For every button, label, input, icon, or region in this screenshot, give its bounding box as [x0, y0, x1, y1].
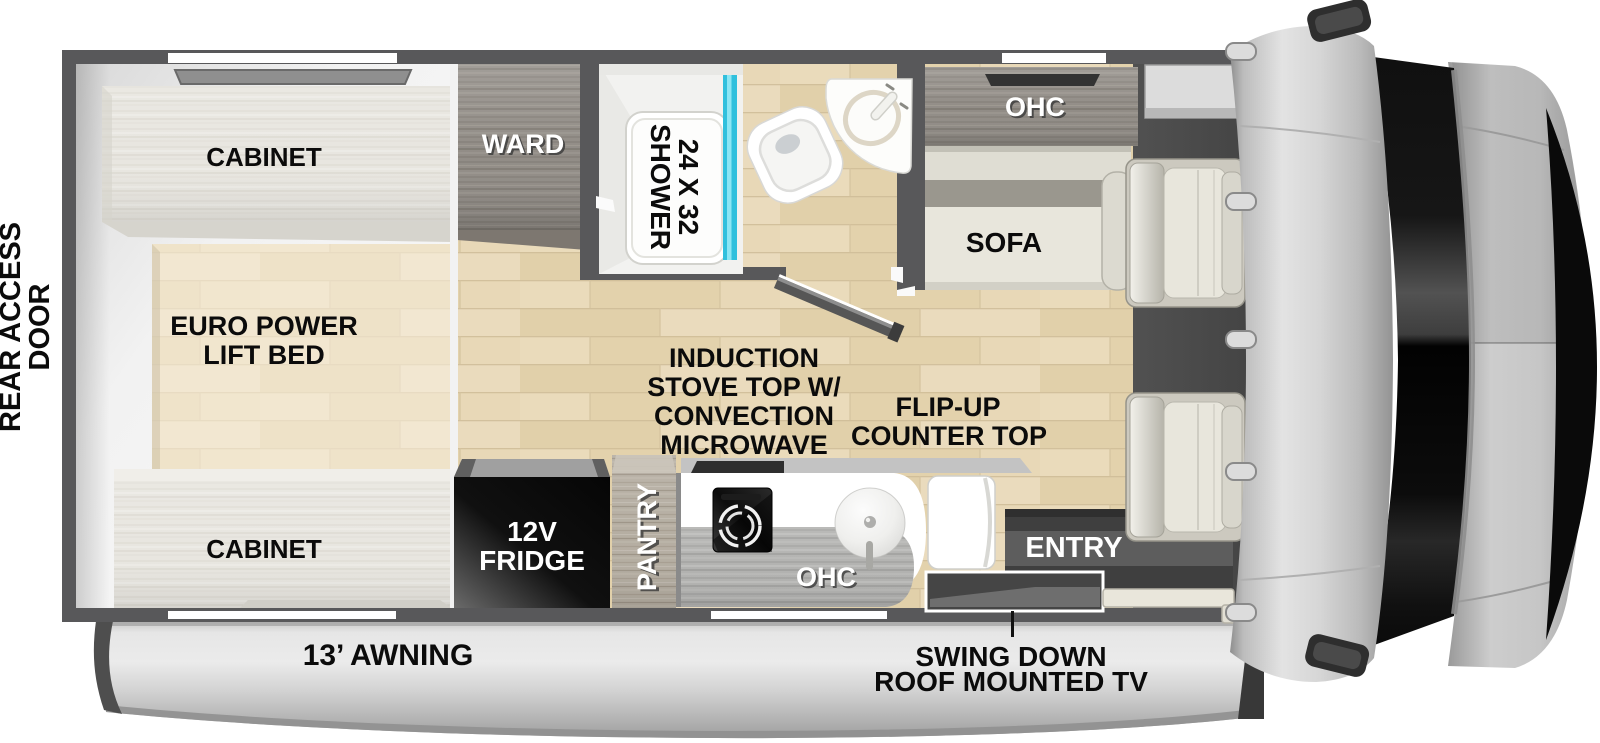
svg-text:SHOWER: SHOWER: [645, 124, 676, 250]
svg-text:OHC: OHC: [796, 562, 856, 592]
svg-text:CABINET: CABINET: [206, 534, 322, 564]
svg-text:13’ AWNING: 13’ AWNING: [303, 639, 474, 672]
svg-text:DOOR: DOOR: [24, 283, 56, 370]
svg-text:SOFA: SOFA: [966, 227, 1042, 258]
svg-text:FRIDGE: FRIDGE: [479, 545, 585, 576]
svg-text:INDUCTION: INDUCTION: [669, 343, 819, 373]
svg-text:MICROWAVE: MICROWAVE: [660, 430, 828, 460]
svg-text:EURO POWER: EURO POWER: [170, 311, 358, 341]
svg-text:CABINET: CABINET: [206, 142, 322, 172]
svg-text:24 X 32: 24 X 32: [673, 139, 704, 236]
svg-text:STOVE TOP W/: STOVE TOP W/: [647, 372, 841, 402]
svg-text:OHC: OHC: [1005, 92, 1065, 122]
svg-text:COUNTER TOP: COUNTER TOP: [851, 421, 1047, 451]
svg-text:ROOF MOUNTED TV: ROOF MOUNTED TV: [874, 666, 1148, 697]
svg-text:LIFT BED: LIFT BED: [203, 340, 325, 370]
svg-text:PANTRY: PANTRY: [632, 483, 662, 591]
svg-text:WARD: WARD: [482, 129, 565, 159]
svg-text:FLIP-UP: FLIP-UP: [896, 392, 1001, 422]
svg-text:REAR ACCESS: REAR ACCESS: [0, 222, 27, 432]
svg-text:CONVECTION: CONVECTION: [654, 401, 834, 431]
svg-text:ENTRY: ENTRY: [1025, 532, 1122, 564]
svg-text:12V: 12V: [507, 516, 557, 547]
